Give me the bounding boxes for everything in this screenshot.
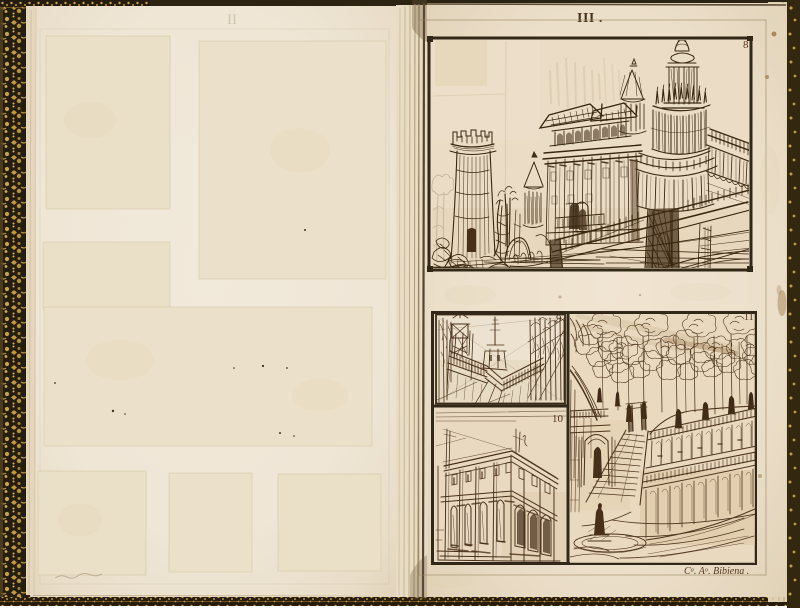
svg-text:III .: III . xyxy=(577,11,603,26)
svg-text:10: 10 xyxy=(552,413,564,425)
svg-text:8: 8 xyxy=(743,39,749,51)
svg-text:9: 9 xyxy=(556,313,562,325)
svg-text:11: 11 xyxy=(744,312,754,323)
svg-text:Ca. Ao. Bibiena .: Ca. Ao. Bibiena . xyxy=(684,566,749,577)
svg-text:II: II xyxy=(227,12,237,28)
